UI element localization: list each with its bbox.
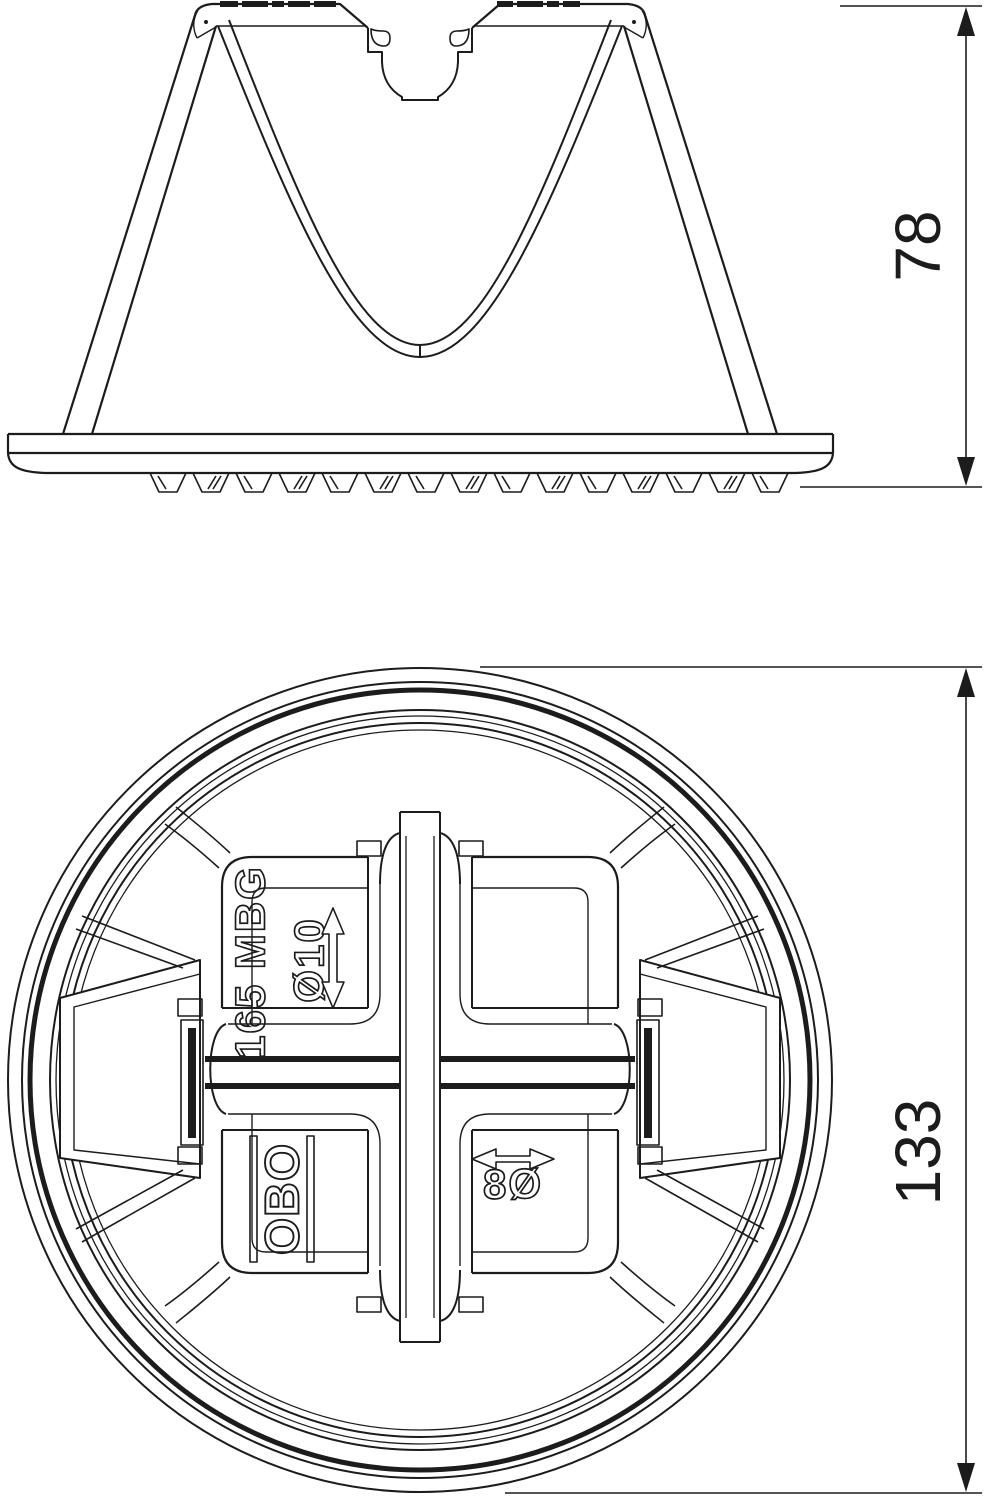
horizontal-conductor-bars — [205, 1056, 635, 1089]
plan-view: 165 MBG Ø10 OBO 8Ø 133 — [8, 667, 982, 1493]
dimension-78-label: 78 — [882, 210, 954, 281]
plan-embossed-labels: 165 MBG Ø10 OBO 8Ø — [227, 865, 555, 1262]
label-brand: OBO — [257, 1143, 310, 1255]
label-diameter-8: 8Ø — [483, 1161, 543, 1208]
dimension-78: 78 — [800, 6, 982, 487]
dimension-133-arrow-down — [957, 1463, 975, 1492]
drawing-page: 78 — [0, 0, 985, 1500]
side-keyhole-hooks — [371, 29, 469, 46]
side-saddle-curves — [218, 20, 622, 357]
side-base-plate — [8, 434, 833, 473]
label-product: 165 MBG — [227, 865, 274, 1059]
plan-wings — [60, 916, 780, 1242]
side-keyhole-slot — [368, 28, 472, 100]
vertical-groove-inner-lines — [406, 836, 434, 1318]
side-shoulder-dot-right — [632, 20, 636, 24]
side-view: 78 — [8, 1, 982, 492]
technical-drawing: 78 — [0, 0, 985, 1500]
dimension-133-arrow-up — [957, 668, 975, 697]
side-base-teeth-path — [150, 473, 788, 492]
dimension-78-arrow-up — [957, 7, 975, 36]
side-shoulder-facets — [194, 10, 647, 38]
side-body-outline — [63, 4, 777, 434]
side-base-teeth — [150, 473, 788, 492]
side-shoulder-dot-left — [204, 20, 208, 24]
dimension-78-arrow-down — [957, 457, 975, 486]
dimension-133-label: 133 — [882, 1099, 954, 1206]
